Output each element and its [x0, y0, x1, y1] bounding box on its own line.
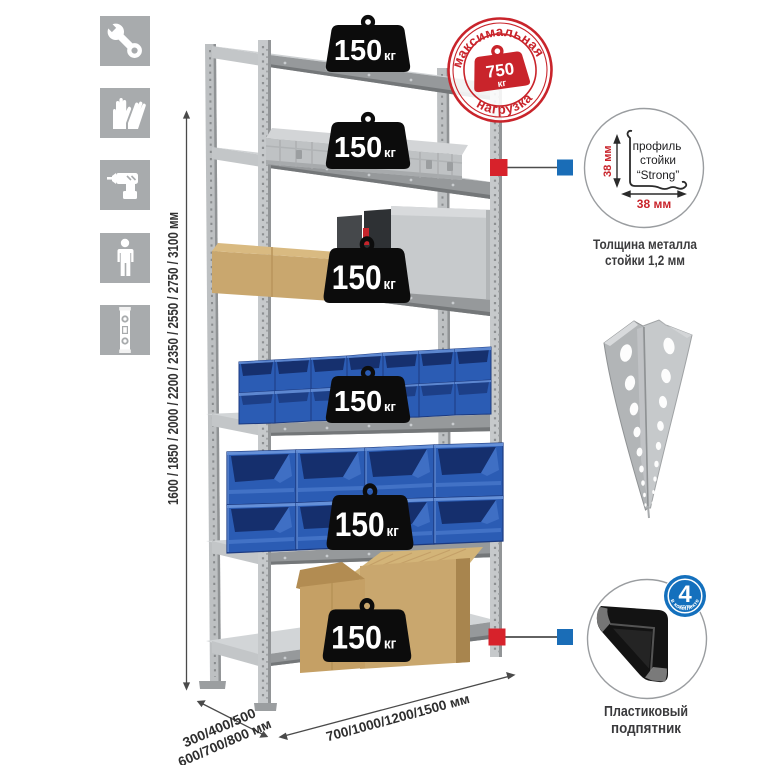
- svg-text:профиль: профиль: [633, 139, 682, 153]
- svg-text:Пластиковый: Пластиковый: [604, 704, 688, 720]
- svg-text:кг: кг: [497, 78, 507, 90]
- svg-text:38 мм: 38 мм: [637, 197, 672, 211]
- svg-text:стойки: стойки: [640, 153, 676, 167]
- svg-text:стойки 1,2 мм: стойки 1,2 мм: [605, 252, 685, 268]
- svg-text:38 мм: 38 мм: [602, 145, 614, 177]
- svg-text:Толщина металла: Толщина металла: [593, 236, 697, 252]
- svg-text:700/1000/1200/1500 мм: 700/1000/1200/1500 мм: [324, 691, 471, 744]
- svg-text:“Strong”: “Strong”: [637, 168, 680, 182]
- svg-text:подпятник: подпятник: [611, 721, 682, 737]
- svg-text:1600 / 1850 / 2000 / 2200 / 23: 1600 / 1850 / 2000 / 2200 / 2350 / 2550 …: [165, 212, 182, 505]
